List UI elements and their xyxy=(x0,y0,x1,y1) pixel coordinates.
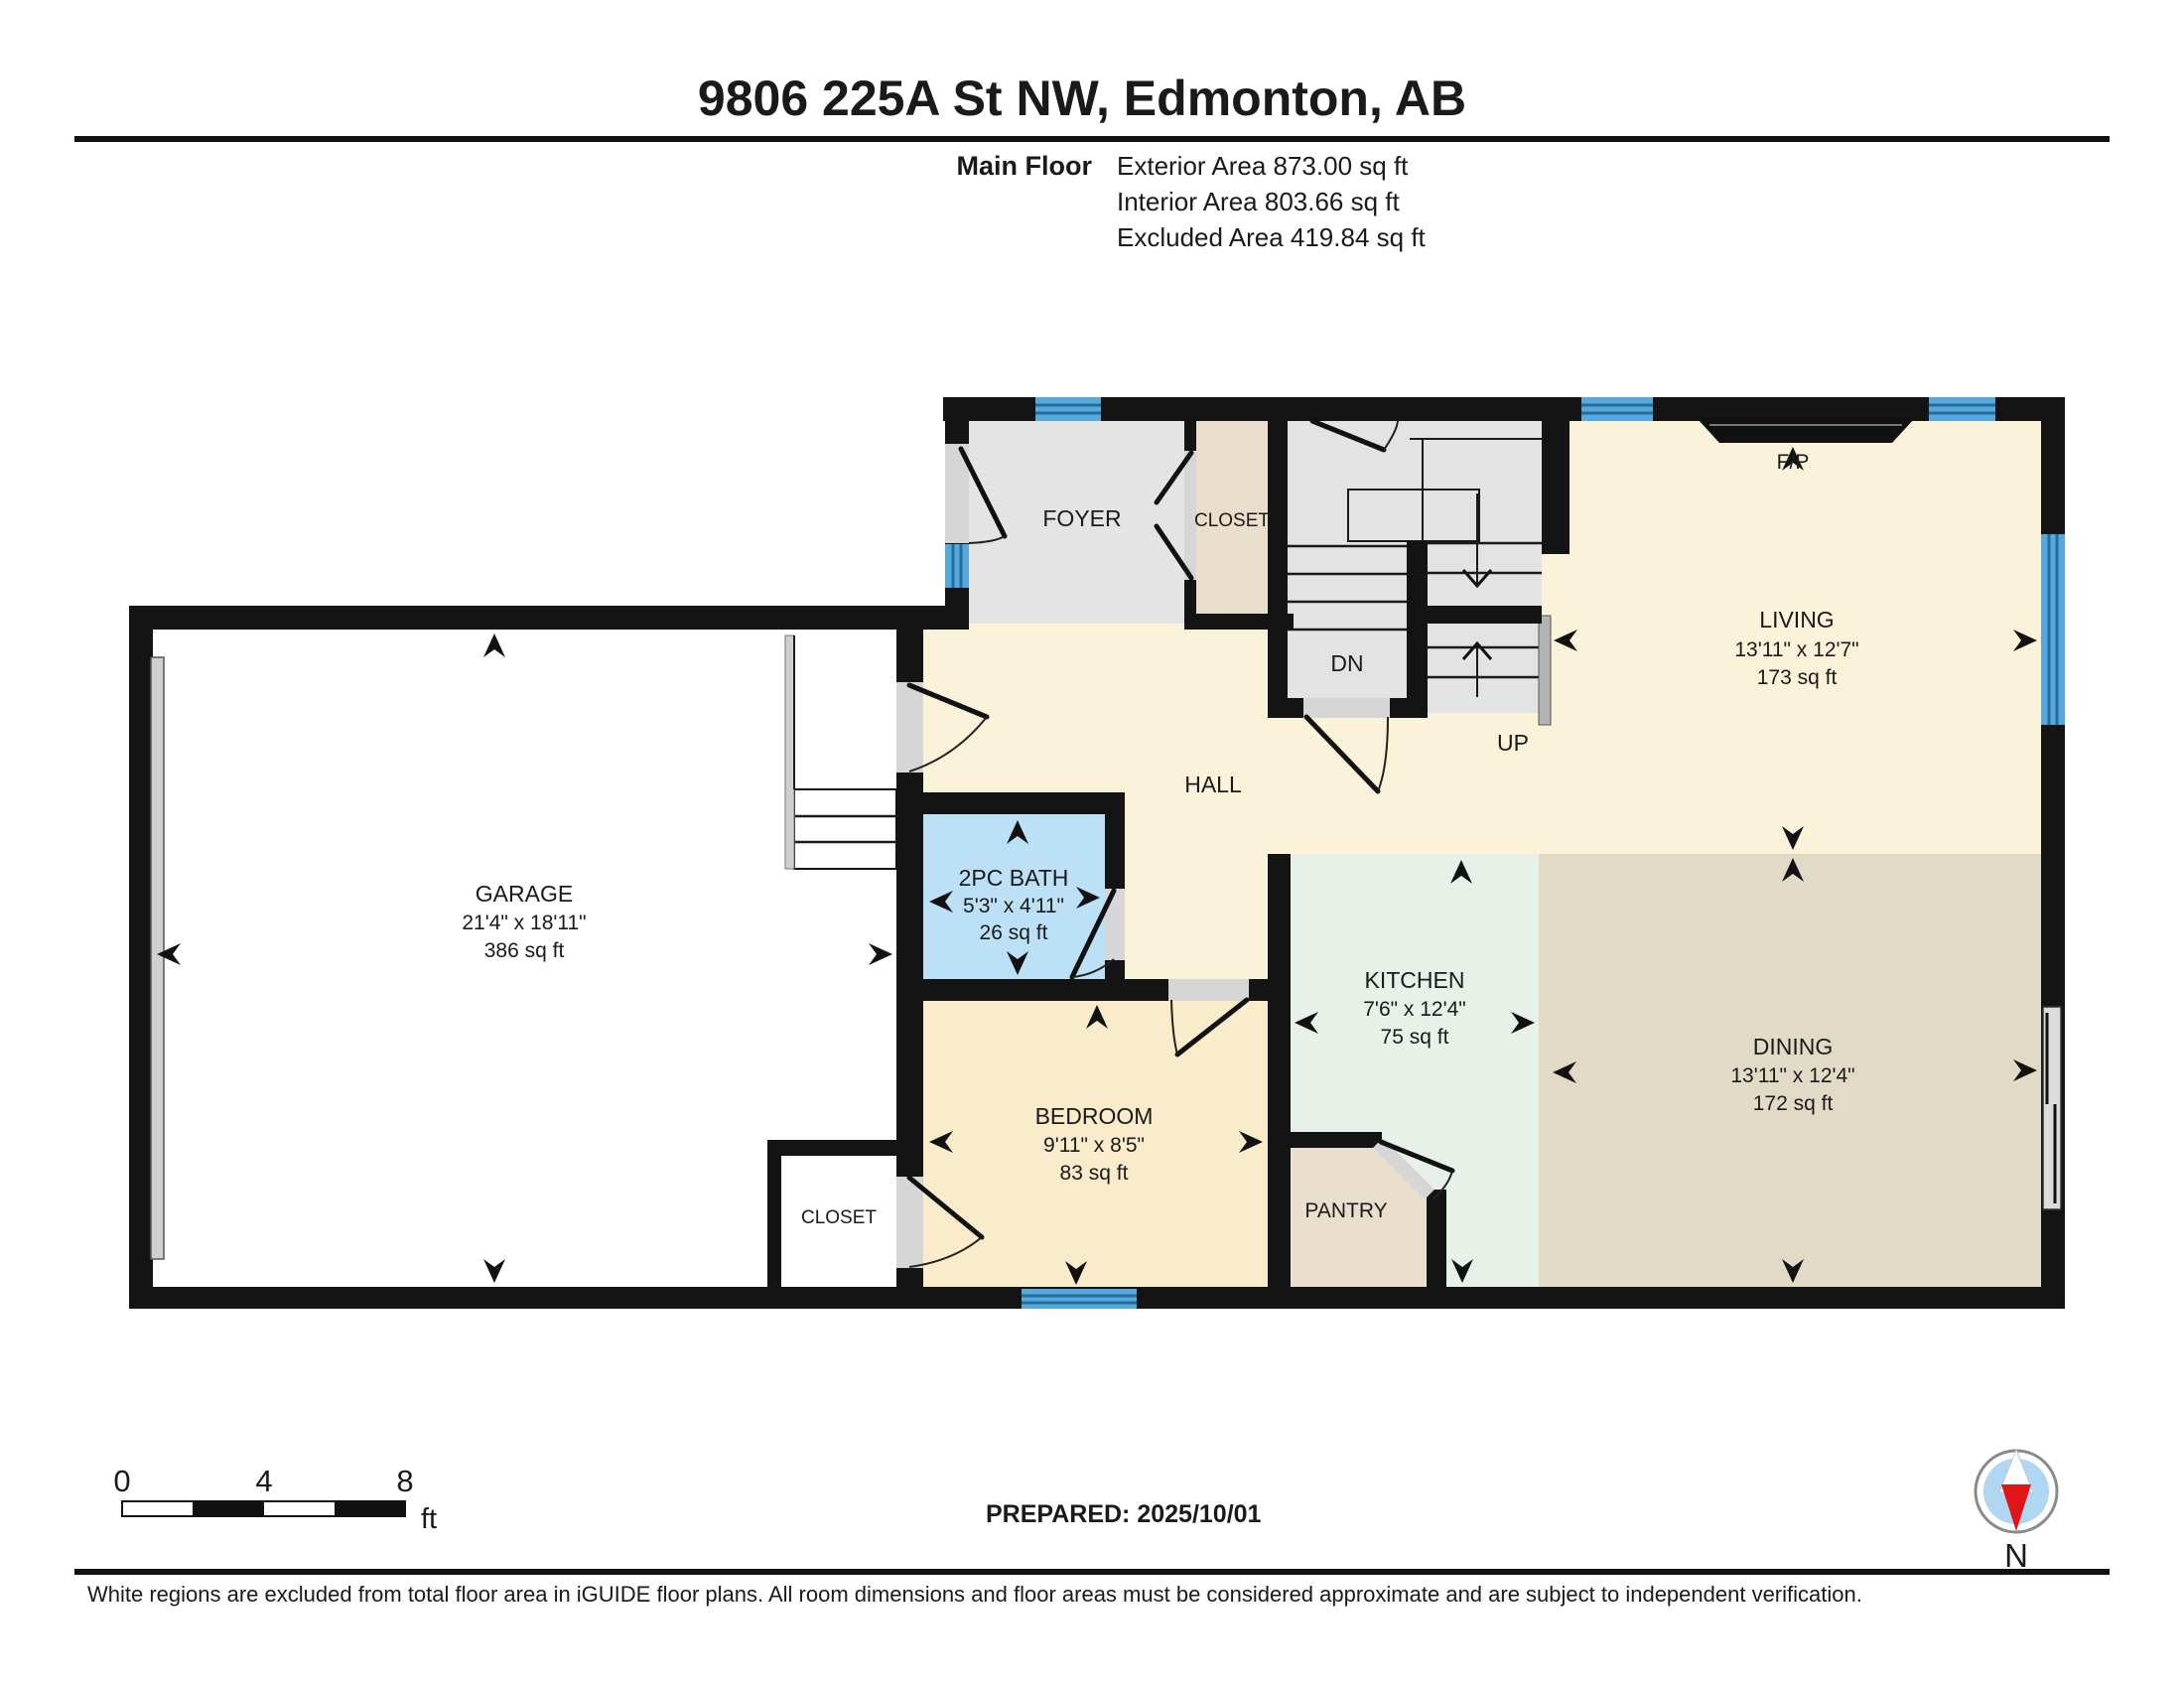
garage-steps xyxy=(794,789,896,869)
label-living-name: LIVING xyxy=(1759,607,1834,633)
label-bedroom-name: BEDROOM xyxy=(1035,1103,1154,1129)
floorplan-page: 9806 225A St NW, Edmonton, AB Main Floor… xyxy=(0,0,2184,1688)
disclaimer-text: White regions are excluded from total fl… xyxy=(87,1582,1862,1607)
floor-label: Main Floor xyxy=(957,151,1093,181)
label-garage-name: GARAGE xyxy=(476,881,573,907)
label-garage-dims: 21'4" x 18'11" xyxy=(462,912,586,934)
excluded-area: Excluded Area 419.84 sq ft xyxy=(1117,222,1427,252)
label-kitchen-name: KITCHEN xyxy=(1365,967,1465,993)
compass-north-label: N xyxy=(2004,1537,2028,1574)
living-side-window-icon xyxy=(2041,534,2065,725)
stair-up-bottom-fill xyxy=(1428,624,1542,713)
garage-step-stringer xyxy=(785,635,794,869)
label-dining-dims: 13'11" x 12'4" xyxy=(1730,1064,1854,1087)
label-dining-area: 172 sq ft xyxy=(1753,1092,1834,1115)
garage-door-icon xyxy=(151,657,164,1259)
label-foyer-closet: CLOSET xyxy=(1194,510,1270,531)
label-kitchen-area: 75 sq ft xyxy=(1381,1026,1449,1049)
label-bath-area: 26 sq ft xyxy=(980,921,1048,944)
room-fills xyxy=(153,421,2041,1287)
scale-tick-4: 4 xyxy=(255,1464,272,1498)
label-dining-name: DINING xyxy=(1753,1034,1834,1059)
dining-sliding-door-icon xyxy=(2043,1007,2061,1209)
living-window1-icon xyxy=(1581,397,1653,421)
footer-divider xyxy=(74,1569,2110,1575)
scale-tick-8: 8 xyxy=(396,1464,413,1498)
compass-icon: N xyxy=(1976,1450,2057,1574)
header: 9806 225A St NW, Edmonton, AB Main Floor… xyxy=(74,70,2110,252)
header-divider xyxy=(74,136,2110,142)
label-pantry: PANTRY xyxy=(1304,1199,1387,1222)
label-living-area: 173 sq ft xyxy=(1757,666,1838,689)
label-stairs-dn: DN xyxy=(1330,650,1363,676)
prepared-date: PREPARED: 2025/10/01 xyxy=(986,1500,1262,1528)
stair-rail-strip xyxy=(1539,616,1551,725)
scale-unit: ft xyxy=(421,1503,437,1535)
label-living-dims: 13'11" x 12'7" xyxy=(1734,638,1858,661)
interior-area: Interior Area 803.66 sq ft xyxy=(1117,187,1401,216)
label-bedroom-area: 83 sq ft xyxy=(1060,1162,1129,1185)
foyer-side-window-icon xyxy=(945,544,969,588)
label-stairs-up: UP xyxy=(1497,730,1529,756)
living-window2-icon xyxy=(1929,397,1995,421)
footer: 0 4 8 ft PREPARED: 2025/10/01 N White re… xyxy=(74,1450,2110,1607)
label-bedroom-closet: CLOSET xyxy=(801,1207,877,1228)
scale-bar: 0 4 8 ft xyxy=(113,1464,437,1535)
scale-tick-0: 0 xyxy=(113,1464,130,1498)
label-kitchen-dims: 7'6" x 12'4" xyxy=(1363,998,1466,1021)
label-foyer: FOYER xyxy=(1042,505,1121,531)
floor-plan-svg: 9806 225A St NW, Edmonton, AB Main Floor… xyxy=(0,0,2184,1688)
label-bedroom-dims: 9'11" x 8'5" xyxy=(1043,1134,1145,1157)
label-bath-name: 2PC BATH xyxy=(959,865,1069,891)
page-title: 9806 225A St NW, Edmonton, AB xyxy=(698,70,1466,126)
label-fireplace: F/P xyxy=(1777,451,1810,474)
label-bath-dims: 5'3" x 4'11" xyxy=(963,895,1064,917)
label-garage-area: 386 sq ft xyxy=(484,939,565,962)
label-hall: HALL xyxy=(1184,772,1242,797)
exterior-area: Exterior Area 873.00 sq ft xyxy=(1117,151,1409,181)
bedroom-window-icon xyxy=(1022,1289,1137,1309)
foyer-window-icon xyxy=(1035,397,1101,421)
